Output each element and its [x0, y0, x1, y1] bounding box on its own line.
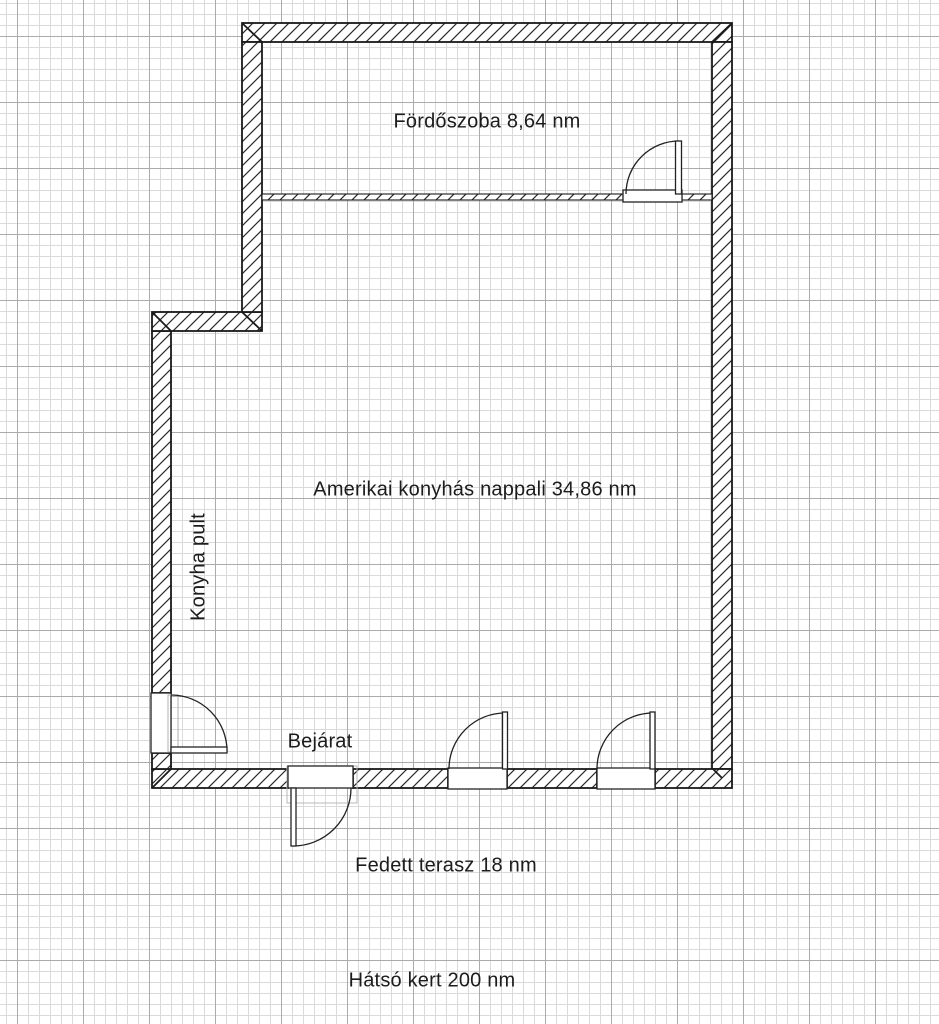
room-label-entrance: Bejárat: [288, 731, 353, 754]
room-label-living-room: Amerikai konyhás nappali 34,86 nm: [313, 479, 636, 502]
room-label-terrace: Fedett terasz 18 nm: [355, 855, 537, 878]
left-side-door: [151, 693, 227, 753]
terrace-door-left: [448, 712, 508, 789]
bathroom-door: [623, 141, 682, 202]
room-label-kitchen-counter: Konyha pult: [188, 513, 211, 621]
entrance-door: [287, 766, 357, 846]
room-label-back-garden: Hátsó kert 200 nm: [349, 970, 516, 993]
room-label-bathroom: Fördőszoba 8,64 nm: [393, 111, 580, 134]
terrace-door-right: [597, 712, 655, 789]
wall-corner-mitres: [152, 23, 732, 788]
floor-plan-canvas: Fördőszoba 8,64 nm Amerikai konyhás napp…: [0, 0, 939, 1024]
exterior-walls: [152, 23, 732, 788]
